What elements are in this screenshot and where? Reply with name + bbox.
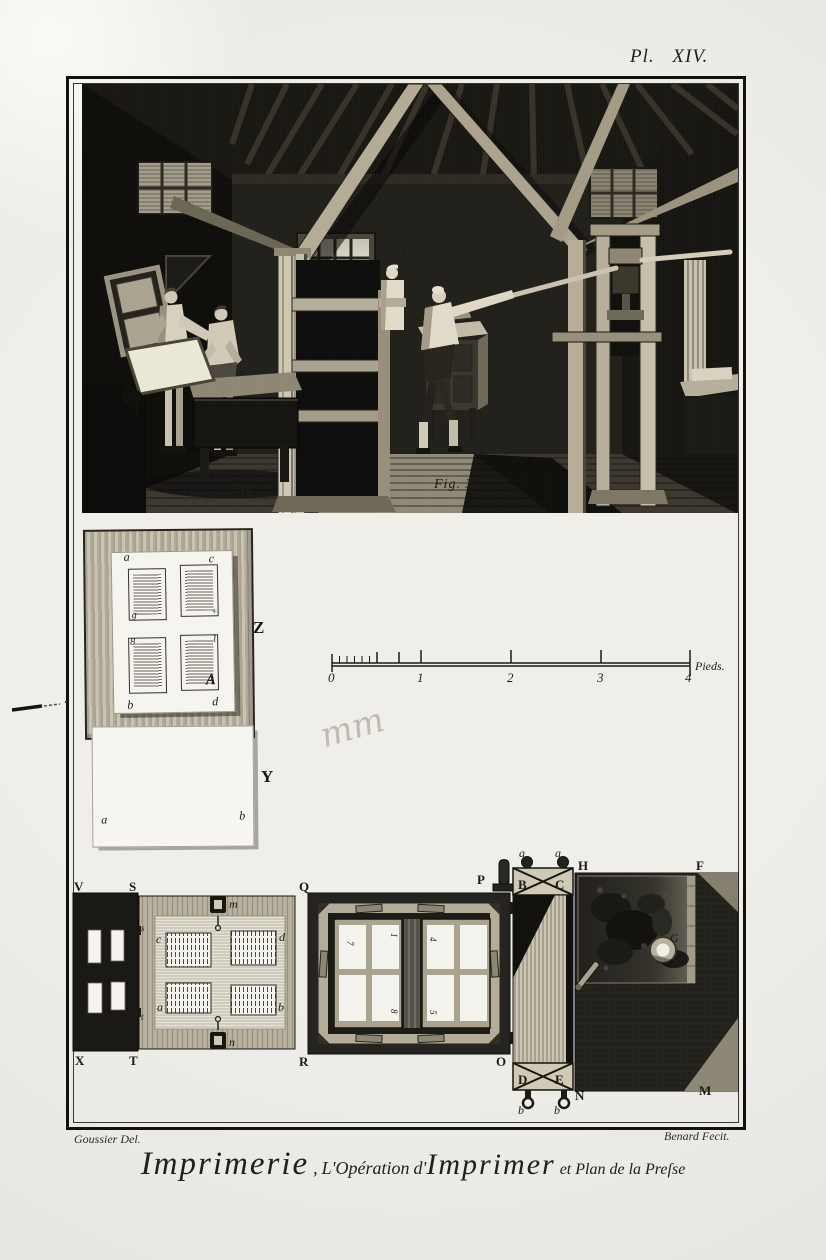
label-X: X <box>75 1053 85 1068</box>
label-Q: Q <box>299 879 309 894</box>
page-mark-8: 8 <box>130 638 135 648</box>
sheet-corner-b: b <box>127 699 133 711</box>
title-operation: L'Opération <box>322 1158 410 1178</box>
page-mark-cross: + <box>211 607 218 617</box>
label-E: E <box>555 1072 564 1087</box>
label-page-c: c <box>156 932 162 946</box>
label-G: G <box>670 931 679 945</box>
press-plan: V S X T m n s t c d a b Q R <box>66 846 746 1118</box>
title-plan-de-la-presse: et Plan de la Preſse <box>560 1161 686 1178</box>
label-n: n <box>229 1035 235 1049</box>
label-page-b: b <box>278 1000 284 1014</box>
engraver-credit-left: Goussier Del. <box>74 1132 141 1147</box>
engraving-grain <box>82 84 738 513</box>
label-D: D <box>518 1072 527 1087</box>
label-L: L <box>599 983 607 997</box>
scale-tick-2: 2 <box>507 670 514 685</box>
label-M: M <box>699 1083 711 1098</box>
title-d-apostrophe: d' <box>414 1158 427 1178</box>
workshop-scene: Fig. 4. <box>82 84 738 513</box>
label-page-d: d <box>279 930 286 944</box>
label-V: V <box>74 879 84 894</box>
scale-unit: Pieds. <box>694 659 725 673</box>
forme-num-5: 5 <box>428 1010 438 1015</box>
page-mark-g: g <box>132 611 137 621</box>
label-Z: Z <box>253 618 264 638</box>
page-mark-1: 1 <box>212 634 217 644</box>
label-a1: a <box>519 846 525 860</box>
engraver-credit-right: Benard Fecit. <box>664 1129 730 1144</box>
label-m: m <box>229 897 238 911</box>
plate-number: Pl. XIV. <box>630 46 708 68</box>
chase-plan <box>308 859 514 1054</box>
label-R: R <box>299 1054 309 1069</box>
forme-num-1: 1 <box>389 933 399 938</box>
scale-tick-4: 4 <box>685 670 692 685</box>
blank-sheet: a b <box>92 725 255 847</box>
scale-tick-1: 1 <box>417 670 424 685</box>
label-Y: Y <box>261 767 273 787</box>
title-word-imprimer: Imprimer <box>426 1148 555 1181</box>
blank-corner-b: b <box>239 809 245 821</box>
label-a2: a <box>555 846 561 860</box>
sheet-corner-d: d <box>212 695 218 707</box>
scale-tick-3: 3 <box>596 670 604 685</box>
printed-sheet: a c b d g + 8 1 A <box>111 550 236 714</box>
title-word-imprimerie: Imprimerie <box>141 1146 309 1182</box>
label-H: H <box>578 858 588 873</box>
scale-bar: 0 1 2 3 4 Pieds. <box>322 642 742 696</box>
sheet-corner-a: a <box>124 551 130 563</box>
forme-num-4: 4 <box>428 937 438 942</box>
label-b2: b <box>554 1103 560 1117</box>
ink-smudge <box>8 696 78 720</box>
carriage-rail <box>513 857 573 1109</box>
forme-num-7: 7 <box>345 941 355 946</box>
forme-num-8: 8 <box>389 1009 399 1014</box>
label-C: C <box>555 877 564 892</box>
label-hinge-s: s <box>141 923 145 933</box>
tympan-plan <box>137 896 295 1049</box>
blank-corner-a: a <box>101 813 107 825</box>
label-b1: b <box>518 1103 524 1117</box>
label-page-a: a <box>157 1000 163 1014</box>
title-comma: , <box>313 1158 318 1178</box>
signature-mark-A: A <box>206 673 216 688</box>
label-S: S <box>129 879 136 894</box>
press-table-plan <box>574 873 738 1091</box>
frisket-plan <box>73 893 138 1051</box>
label-T: T <box>129 1053 138 1068</box>
label-B: B <box>518 877 527 892</box>
label-O: O <box>496 1054 506 1069</box>
sheet-corner-c: c <box>209 552 215 564</box>
label-P: P <box>477 872 485 887</box>
scale-tick-0: 0 <box>328 670 335 685</box>
plate-title: Imprimerie , L'Opération d'Imprimer et P… <box>0 1146 826 1183</box>
label-F: F <box>696 858 704 873</box>
